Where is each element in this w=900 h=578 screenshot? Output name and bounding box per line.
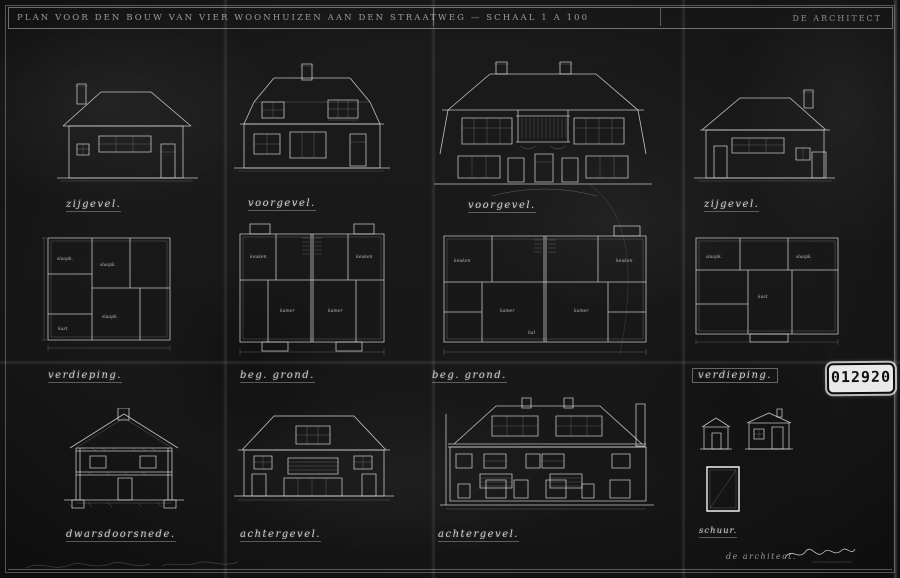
room-label: slaapk. (100, 262, 117, 268)
label-upper-plan-right: verdieping. (692, 368, 778, 383)
label-side-elevation-right: zijgevel. (704, 199, 759, 212)
archive-number-stamp: 012920 (827, 363, 895, 395)
label-cross-section: dwarsdoorsnede. (66, 529, 176, 542)
label-rear-elevation-a: achtergevel. (240, 529, 321, 542)
shed-elevation-large-drawing (745, 408, 793, 454)
room-label: kamer (328, 308, 343, 314)
shed-plan-drawing (702, 462, 744, 516)
front-elevation-house-a-drawing (232, 62, 392, 194)
floor-plan-upper-right-drawing: slaapk. slaapk. kast (688, 226, 848, 348)
sheet-title-right: DE ARCHITECT (793, 14, 893, 23)
cross-section-drawing (62, 408, 187, 520)
fold-crease-vertical-1 (223, 0, 228, 578)
architect-signature (782, 542, 857, 566)
label-shed: schuur. (699, 526, 737, 538)
sheet-title: PLAN VOOR DEN BOUW VAN VIER WOONHUIZEN A… (9, 13, 793, 23)
blueprint-sheet: PLAN VOOR DEN BOUW VAN VIER WOONHUIZEN A… (0, 0, 900, 578)
title-block-divider-2 (660, 8, 661, 26)
rear-elevation-house-a-drawing (232, 402, 397, 520)
label-ground-plan-right: beg. grond. (432, 370, 507, 383)
label-side-elevation-left: zijgevel. (66, 199, 121, 212)
floor-plan-ground-left-drawing: keuken keuken kamer kamer (232, 218, 392, 358)
fold-crease-right-edge (893, 0, 898, 578)
room-label: keuken (356, 254, 373, 260)
title-block-divider-1 (433, 8, 434, 26)
room-label: kamer (500, 308, 515, 314)
room-label: hal (528, 330, 536, 336)
room-label: kast (58, 326, 68, 332)
room-label: keuken (250, 254, 267, 260)
room-label: kast (758, 294, 768, 300)
label-upper-plan-left: verdieping. (48, 370, 122, 383)
room-label: kamer (280, 308, 295, 314)
front-elevation-double-house-drawing (432, 58, 654, 198)
room-label: slaapk. (102, 314, 119, 320)
handwritten-note (22, 556, 262, 574)
floor-plan-upper-left-drawing: slaapk. slaapk. slaapk. kast (42, 226, 190, 354)
room-label: slaapk. (706, 254, 723, 260)
room-label: slaapk. (57, 256, 74, 262)
title-block: PLAN VOOR DEN BOUW VAN VIER WOONHUIZEN A… (8, 7, 893, 29)
shed-elevation-small-drawing (700, 415, 732, 453)
label-front-elevation-b: voorgevel. (468, 200, 536, 213)
room-label: keuken (454, 258, 471, 264)
fold-crease-vertical-3 (681, 0, 686, 578)
side-elevation-right-drawing (692, 88, 837, 193)
side-elevation-left-drawing (55, 82, 200, 194)
rear-elevation-double-house-drawing (438, 396, 656, 524)
scratch-crease-overlay (560, 180, 680, 360)
fold-crease-horizontal (0, 360, 900, 365)
room-label: slaapk. (796, 254, 813, 260)
label-front-elevation-a: voorgevel. (248, 198, 316, 211)
label-rear-elevation-b: achtergevel. (438, 529, 519, 542)
label-ground-plan-left: beg. grond. (240, 370, 315, 383)
